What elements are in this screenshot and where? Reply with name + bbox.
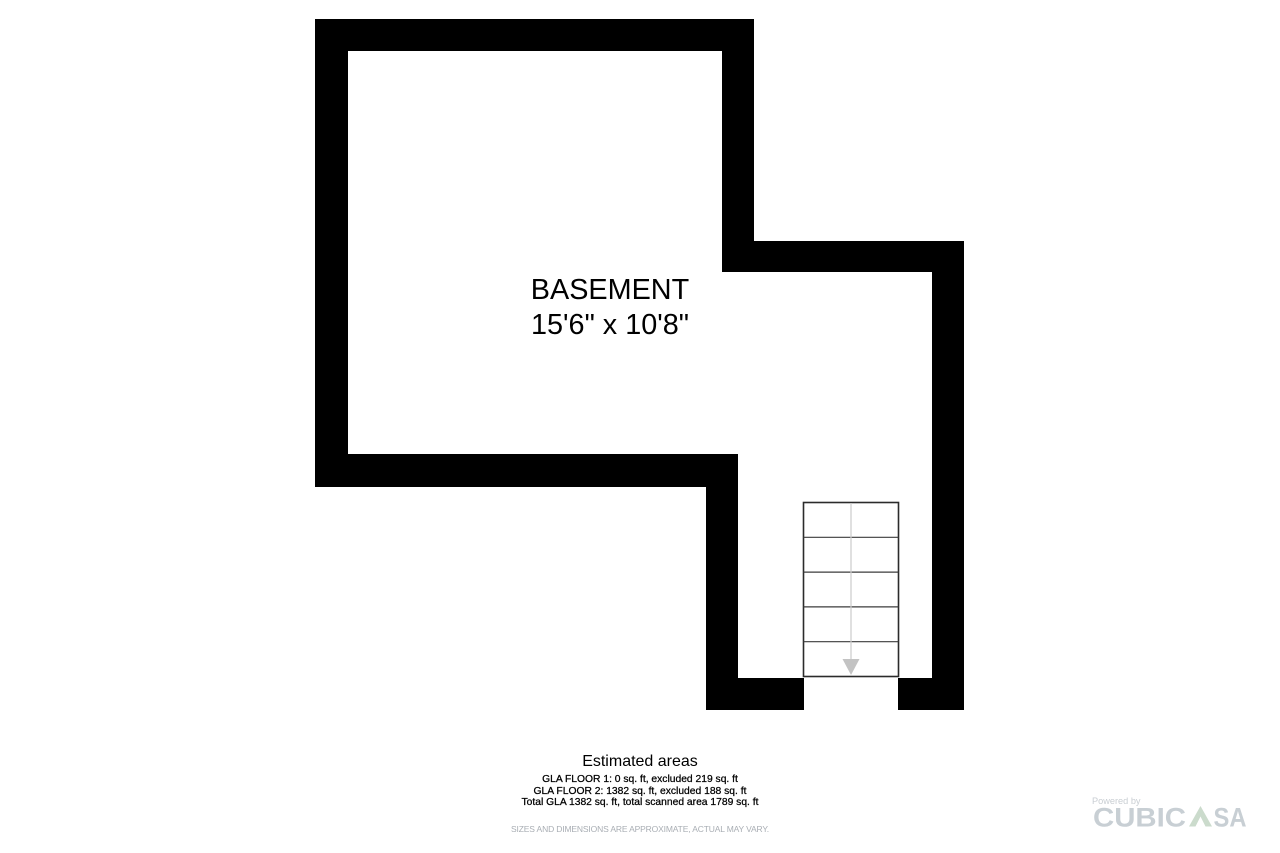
svg-text:SA: SA	[1214, 803, 1247, 833]
svg-text:CUBIC: CUBIC	[1093, 803, 1186, 833]
